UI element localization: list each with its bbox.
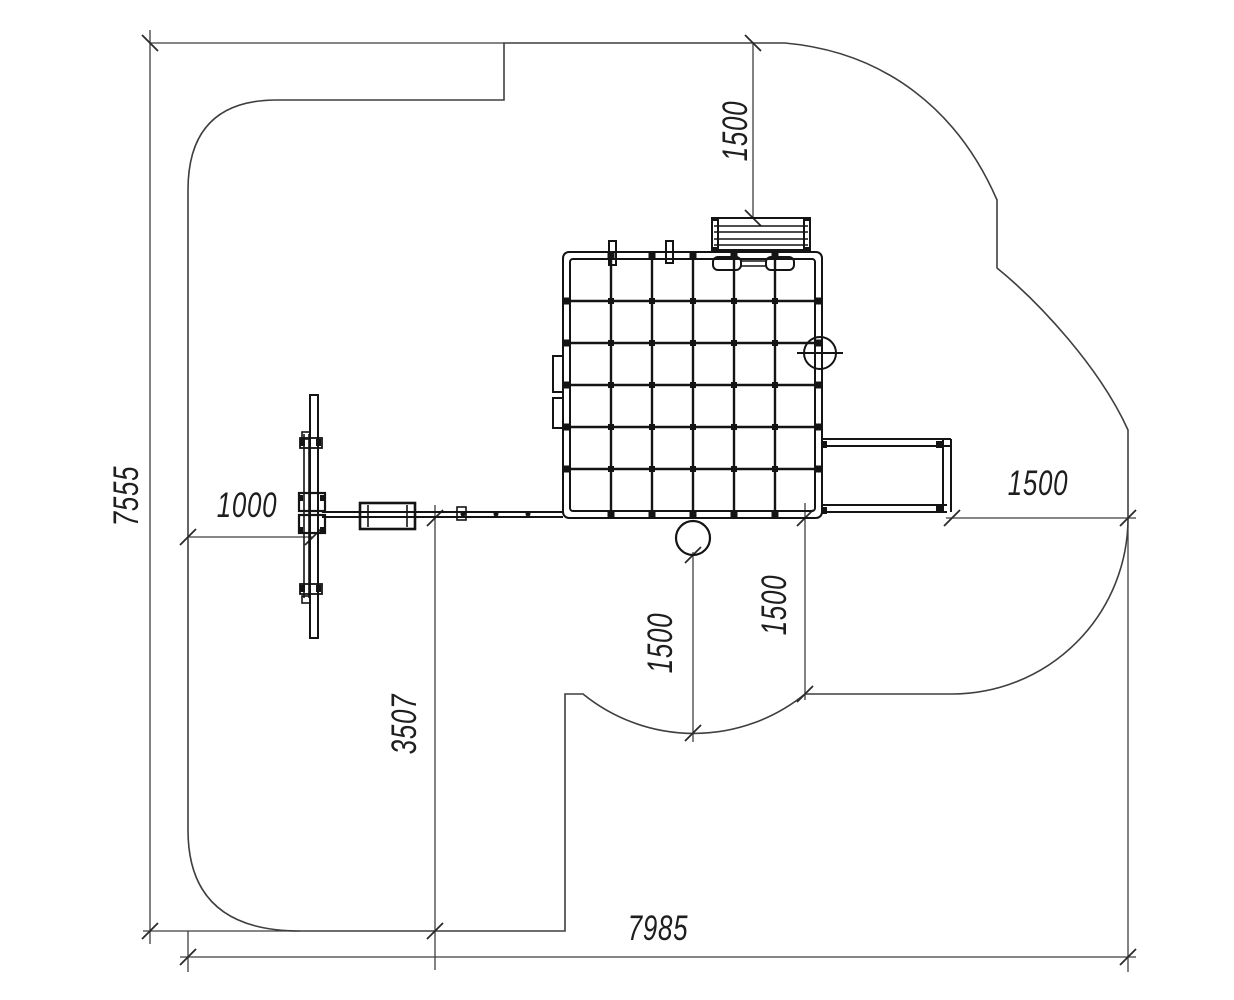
frame-clamp	[553, 398, 563, 428]
dimension-label-7985: 7985	[628, 909, 689, 949]
dimension-label-1500-center: 1500	[641, 613, 681, 674]
dimension-label-1500-right: 1500	[1008, 464, 1069, 504]
pole-circle	[676, 521, 710, 555]
ladder-top-view	[822, 439, 951, 514]
dimension-ticks	[142, 35, 1136, 965]
dimension-lines	[143, 30, 1136, 972]
balance-beam	[322, 507, 563, 520]
frame-clamp	[553, 356, 563, 392]
climbing-net-frame	[553, 241, 843, 518]
dimension-label-1500-inner: 1500	[755, 575, 795, 636]
equipment	[298, 218, 951, 638]
dimension-label-1500-top: 1500	[716, 101, 756, 162]
safety-zone-outline	[188, 43, 1128, 931]
bench-top-view	[712, 218, 810, 250]
dimension-label-3507: 3507	[385, 694, 425, 755]
drawing-canvas: 7555 1500 1000 3507 1500 1500 1500 7985	[0, 0, 1234, 1000]
dimension-label-7555: 7555	[107, 466, 147, 527]
dimension-label-1000: 1000	[217, 486, 278, 526]
swing-plank	[298, 395, 325, 638]
